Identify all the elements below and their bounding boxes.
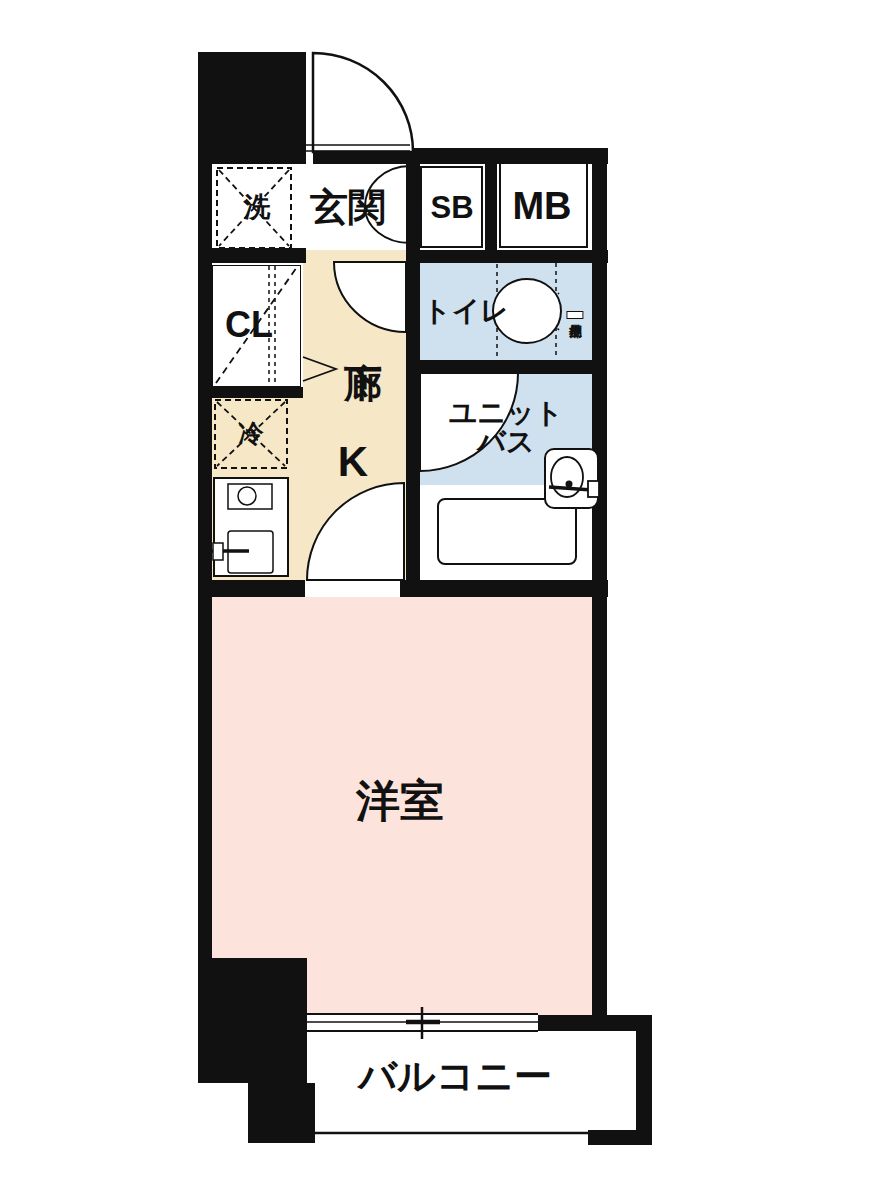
label-closet: CL: [225, 306, 273, 344]
entrance-door-arc: [313, 53, 413, 152]
washbasin-handle: [588, 481, 599, 497]
label-entrance: 玄関: [310, 188, 386, 228]
kitchen-door-arc: [307, 483, 404, 580]
label-washer: 洗: [244, 193, 271, 221]
floor-plan: 洗 玄関 SB MB CL 廊下 トイレ 上部吊戸棚 冷 K ユニット バス 洋…: [0, 0, 880, 1200]
washbasin-drain: [566, 481, 573, 488]
label-corridor: 廊下: [342, 331, 382, 343]
label-fridge: 冷: [239, 420, 264, 446]
corridor-door-arc: [334, 262, 406, 332]
kitchen-faucet-handle: [213, 543, 223, 560]
label-unit-bath: ユニット バス: [449, 398, 564, 457]
label-meterbox: MB: [512, 187, 571, 227]
label-toilet: トイレ: [423, 296, 509, 325]
label-unit-bath-line2: バス: [477, 426, 534, 457]
fixtures-overlay: [0, 0, 880, 1200]
label-upper-cabinet: 上部吊戸棚: [566, 311, 583, 319]
label-kitchen: K: [338, 440, 368, 484]
label-unit-bath-line1: ユニット: [449, 397, 564, 428]
label-western-room: 洋室: [356, 778, 444, 824]
closet-arrow: [303, 357, 336, 381]
label-shoebox: SB: [430, 192, 473, 225]
label-balcony: バルコニー: [358, 1057, 552, 1097]
